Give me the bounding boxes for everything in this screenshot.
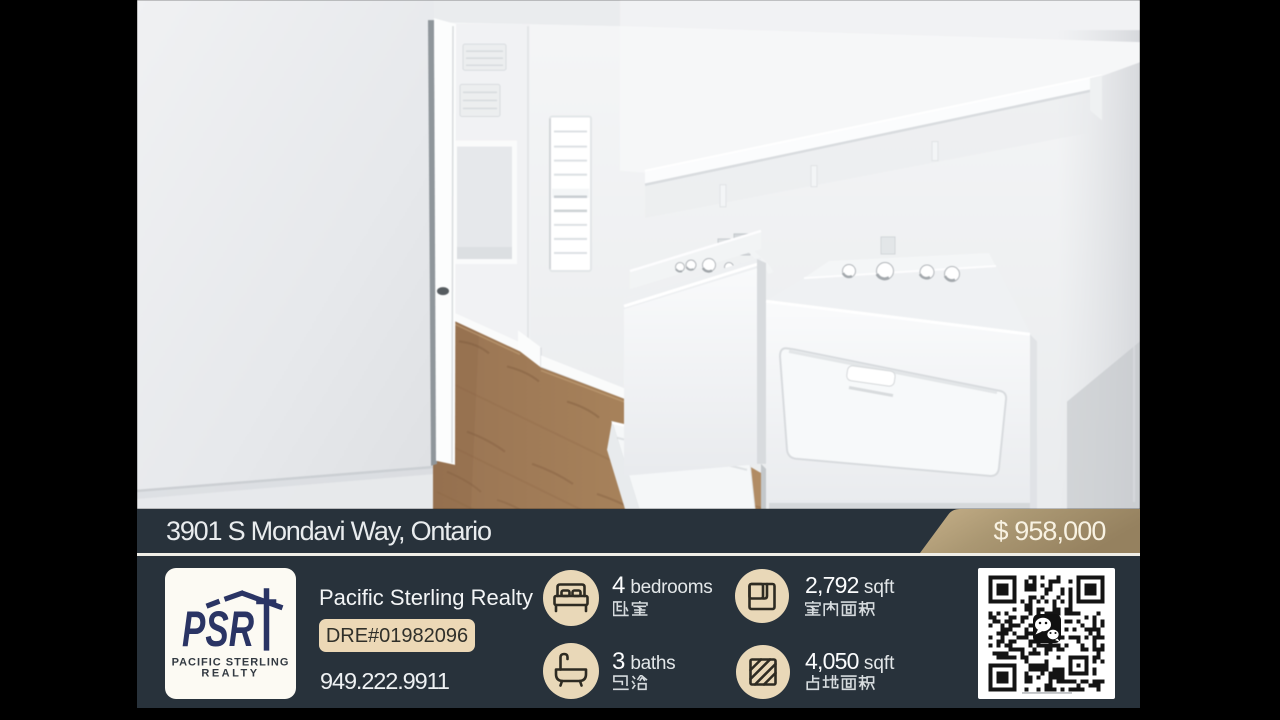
svg-text:PSR: PSR xyxy=(182,601,254,657)
svg-text:REALTY: REALTY xyxy=(201,668,259,680)
